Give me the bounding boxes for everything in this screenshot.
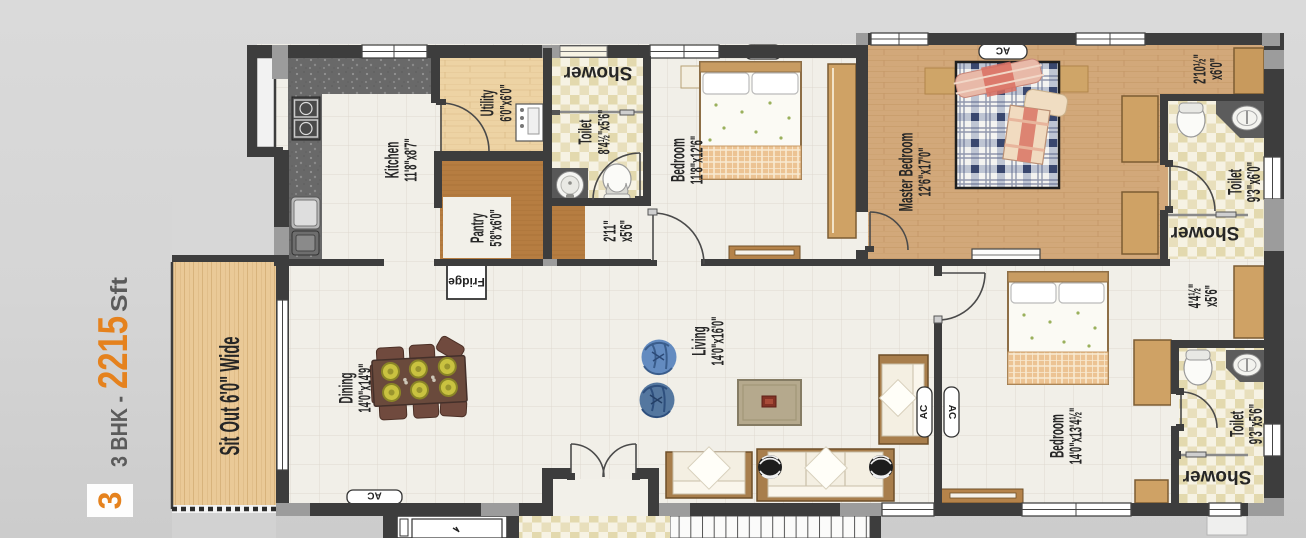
svg-text:9'3"x5'6": 9'3"x5'6" (1247, 404, 1267, 444)
svg-text:8'4½"x5'6": 8'4½"x5'6" (594, 110, 613, 155)
svg-text:3 BHK -: 3 BHK - (106, 396, 132, 467)
svg-text:Toilet: Toilet (1227, 411, 1248, 437)
svg-text:Shower: Shower (1182, 466, 1251, 487)
svg-text:11'8"x8'7": 11'8"x8'7" (400, 138, 420, 181)
svg-text:AC: AC (919, 405, 930, 419)
svg-text:x6'0": x6'0" (1206, 58, 1226, 80)
svg-text:11'8"x12'6": 11'8"x12'6" (686, 136, 706, 185)
svg-text:AC: AC (996, 45, 1010, 56)
svg-text:Shower: Shower (563, 62, 632, 83)
svg-text:3: 3 (92, 492, 128, 510)
svg-text:AC: AC (367, 490, 381, 501)
svg-text:x5'6": x5'6" (1201, 285, 1221, 307)
svg-text:14'0"x13'4½": 14'0"x13'4½" (1065, 408, 1085, 465)
svg-text:6'0"x6'0": 6'0"x6'0" (496, 84, 515, 121)
svg-text:5'8"x6'0": 5'8"x6'0" (486, 209, 505, 246)
svg-text:9'3"x6'0": 9'3"x6'0" (1245, 162, 1265, 202)
svg-text:2215: 2215 (89, 316, 136, 389)
svg-text:Shower: Shower (1170, 222, 1239, 243)
svg-text:14'0"x16'0": 14'0"x16'0" (707, 316, 727, 365)
svg-text:14'0"x14'9": 14'0"x14'9" (354, 363, 374, 412)
svg-text:12'6"x17'0": 12'6"x17'0" (914, 147, 934, 196)
svg-text:Fridge: Fridge (448, 275, 485, 289)
svg-text:Toilet: Toilet (1225, 169, 1246, 195)
svg-text:Sft: Sft (106, 277, 132, 312)
svg-text:AC: AC (946, 405, 957, 419)
svg-text:Sit Out 6'0" Wide: Sit Out 6'0" Wide (214, 336, 245, 455)
svg-text:x5'6": x5'6" (616, 220, 636, 242)
